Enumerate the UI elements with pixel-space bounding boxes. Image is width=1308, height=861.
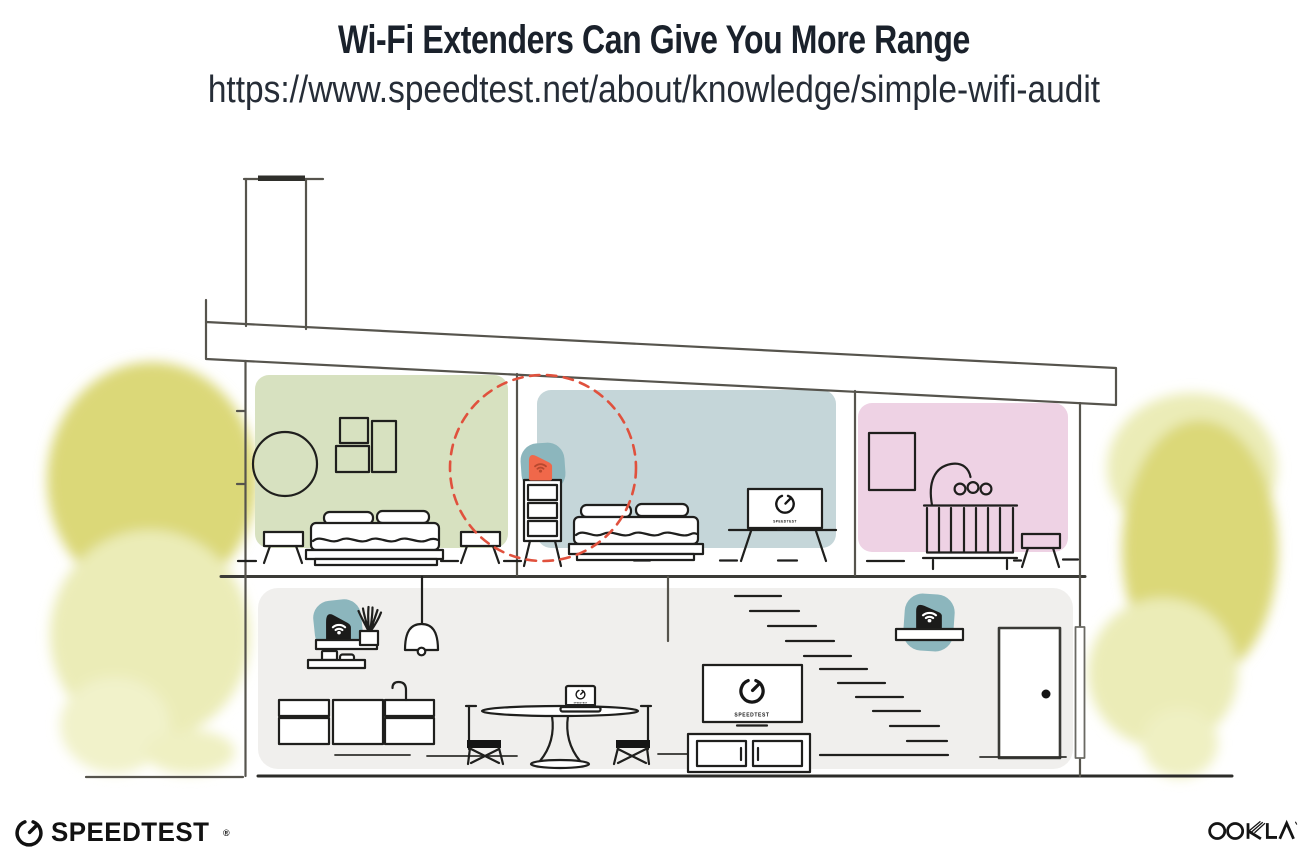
wall-shelf <box>896 629 963 640</box>
dresser <box>524 480 561 566</box>
speedtest-logo-text: SPEEDTEST <box>51 817 209 848</box>
wall-pillar <box>1076 627 1085 758</box>
chimney-cap <box>258 176 305 182</box>
foliage-right <box>1088 393 1278 778</box>
pillow <box>581 505 631 517</box>
door-knob <box>1042 690 1051 699</box>
registered-mark: ® <box>223 828 230 838</box>
tv-screen-label: SPEEDTEST <box>773 520 797 524</box>
foliage-left <box>47 362 257 774</box>
pillow <box>636 504 688 516</box>
ookla-logo: OOKLA <box>1208 818 1300 849</box>
pillow <box>377 511 429 523</box>
ookla-wordmark <box>1208 818 1300 844</box>
speedtest-gauge-icon <box>14 818 44 848</box>
house-illustration: SPEEDTEST <box>0 0 1308 861</box>
cup <box>322 651 337 660</box>
bed <box>569 504 703 560</box>
infographic-page: Wi-Fi Extenders Can Give You More Range … <box>0 0 1308 861</box>
living-room-tv: SPEEDTEST <box>703 665 802 726</box>
tv-screen-label: SPEEDTEST <box>734 713 769 719</box>
laptop: SPEEDTEST <box>561 686 601 712</box>
media-console <box>688 734 810 772</box>
speedtest-logo: SPEEDTEST® <box>14 817 230 848</box>
bedroom-tv: SPEEDTEST <box>748 489 822 531</box>
